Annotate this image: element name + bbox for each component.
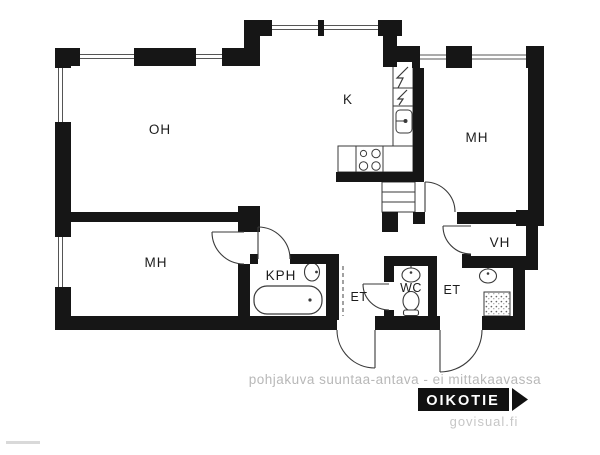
door-entry-2 bbox=[440, 330, 482, 372]
room-label-wc: WC bbox=[400, 281, 422, 295]
hall2-sink-icon bbox=[480, 268, 497, 283]
floorplan-page: OH K MH MH VH KPH ET WC ET pohjakuva suu… bbox=[0, 0, 600, 450]
window-k-top-2 bbox=[324, 20, 378, 36]
bathroom-sink-icon bbox=[305, 263, 320, 281]
walls bbox=[55, 20, 544, 330]
room-label-bathroom: KPH bbox=[266, 268, 297, 283]
window-left-mh bbox=[55, 237, 71, 287]
credit-text: govisual.fi bbox=[450, 414, 519, 429]
room-label-bedroom-left: MH bbox=[145, 255, 168, 270]
kitchen-appliance-column bbox=[393, 60, 413, 146]
disclaimer-text: pohjakuva suuntaa-antava - ei mittakaava… bbox=[249, 372, 541, 387]
hall-shelf-closet bbox=[382, 182, 415, 212]
kitchen-sink-icon bbox=[396, 110, 412, 133]
door-bedroom-right bbox=[425, 182, 455, 212]
oikotie-logo: OIKOTIE bbox=[418, 388, 528, 411]
floor-drain-area bbox=[484, 292, 510, 316]
bathtub-icon bbox=[254, 286, 322, 314]
room-label-hall-2: ET bbox=[444, 283, 461, 297]
window-mh-top-2 bbox=[472, 46, 526, 68]
oikotie-logo-arrow-icon bbox=[512, 388, 528, 411]
room-label-closet: VH bbox=[490, 235, 511, 250]
window-left-oh bbox=[55, 68, 71, 122]
floorplan-svg: OH K MH MH VH KPH ET WC ET pohjakuva suu… bbox=[0, 0, 600, 450]
door-entry-1 bbox=[337, 330, 375, 368]
window-k-top-1 bbox=[272, 20, 318, 36]
room-label-kitchen: K bbox=[343, 92, 353, 107]
toilet-icon bbox=[403, 292, 419, 316]
kitchen-counter bbox=[338, 146, 413, 172]
oikotie-logo-text: OIKOTIE bbox=[426, 393, 500, 409]
door-bedroom-left bbox=[212, 232, 244, 264]
door-bathroom bbox=[258, 227, 290, 259]
window-mh-top-1 bbox=[420, 46, 446, 68]
door-closet-vh bbox=[443, 226, 471, 254]
watermark-smudge bbox=[6, 441, 40, 444]
room-label-hall-1: ET bbox=[351, 290, 368, 304]
room-label-living: OH bbox=[149, 122, 171, 137]
room-label-bedroom-right: MH bbox=[466, 130, 489, 145]
wc-sink-icon bbox=[402, 266, 420, 282]
window-oh-top-2 bbox=[196, 48, 222, 66]
window-oh-top-1 bbox=[80, 48, 134, 66]
